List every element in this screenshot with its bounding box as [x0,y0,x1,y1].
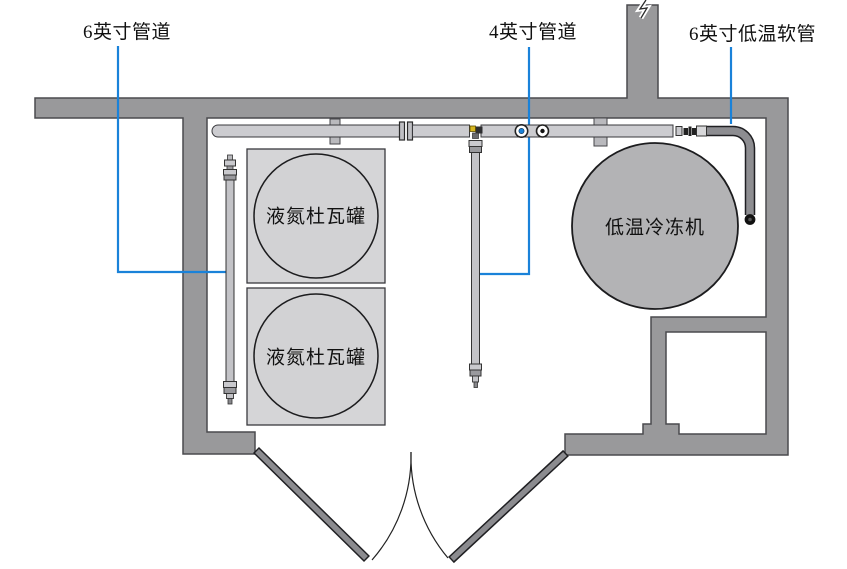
leader-line-6in-pipe [118,46,228,272]
hose-coupling-fittings [676,126,707,136]
door-left-leaf [256,450,367,559]
callout-6in-hose: 6英寸低温软管 [689,19,816,46]
label-dewar-2: 液氮杜瓦罐 [266,343,366,370]
label-dewar-1: 液氮杜瓦罐 [266,202,366,229]
pipe-segment-1 [212,125,400,137]
door-swing-arc-right [411,452,448,558]
pipe-6in-vertical [224,155,237,404]
pipe-4in-vertical [469,141,482,388]
valve-black-handle-icon [537,125,549,137]
pipe-flange-left [400,122,405,140]
pipe-segment-2 [413,125,470,137]
leader-line-4in-pipe [478,47,529,274]
pipe-main-6in [212,122,673,140]
callout-4in-pipe: 4英寸管道 [489,17,577,44]
valve-blue-handle-icon [515,125,527,137]
pipe-flange-right [408,122,413,140]
floor-plan-drawing [0,0,847,569]
callout-6in-pipe: 6英寸管道 [83,17,171,44]
door-right-leaf [451,453,566,560]
elbow-yellow-block [470,126,476,132]
label-chiller: 低温冷冻机 [605,213,705,240]
floor-plan-canvas: 6英寸管道 4英寸管道 6英寸低温软管 液氮杜瓦罐 液氮杜瓦罐 低温冷冻机 [0,0,847,569]
door-swing-arc-left [372,452,411,560]
pipe-segment-3 [481,125,673,137]
